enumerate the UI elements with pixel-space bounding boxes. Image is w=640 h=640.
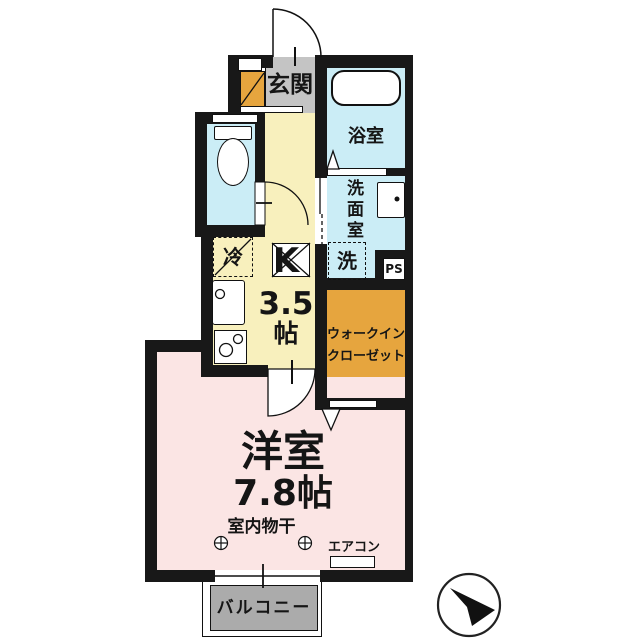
stove (214, 330, 247, 364)
washer-label: 洗 (337, 251, 357, 271)
entrance-step (240, 106, 303, 113)
washroom-label: 洗面室 (344, 179, 361, 242)
washbasin (377, 182, 405, 218)
fridge-box: 冷 (213, 237, 253, 277)
entrance-label: 玄関 (265, 74, 315, 97)
room-fill-left (157, 352, 201, 377)
indoor-drying-label: 室内物干 (194, 519, 329, 536)
floorplan-canvas: PS 洗 冷 バルコニー 玄関 浴室 洗面室 K 3.5 帖 ウォークイン クロ… (0, 0, 640, 640)
right-wall (405, 55, 413, 582)
bath-label: 浴室 (327, 128, 405, 146)
aircon-label: エアコン (328, 541, 378, 554)
bath-left-wall (315, 68, 327, 178)
room-left-wall (145, 340, 157, 582)
entrance-window (238, 58, 262, 71)
fridge-label: 冷 (223, 247, 243, 267)
kitchen-sink (212, 280, 245, 325)
shoe-cabinet (240, 71, 265, 107)
wic-threshold (329, 400, 377, 408)
wic-label-line1: ウォークイン (327, 328, 405, 341)
top-wall-right (315, 55, 413, 68)
entrance-doorway-fill (273, 57, 315, 68)
ps-box: PS (383, 258, 405, 280)
balcony-label: バルコニー (217, 600, 312, 617)
kitchen-unit-label: 帖 (258, 321, 314, 346)
kitchen-k-label: K (266, 244, 306, 278)
north-arrow-icon (438, 574, 500, 636)
toilet-window (212, 114, 258, 123)
toilet-right-wall-low (255, 220, 265, 237)
kitchen-size-label: 3.5 (258, 289, 314, 320)
aircon-box (330, 556, 375, 568)
room-bottom-wall (145, 570, 413, 582)
washroom-left-wall (315, 244, 327, 410)
kitchen-bottom-wall (201, 365, 268, 377)
washer-box: 洗 (328, 242, 366, 280)
room-label: 洋室 (183, 431, 383, 473)
washroom-door-icon (315, 178, 327, 244)
bathtub (331, 70, 401, 106)
wic-label-line2: クローゼット (327, 350, 405, 363)
bath-threshold (327, 168, 387, 176)
ps-label: PS (385, 263, 402, 275)
room-size-label: 7.8帖 (183, 476, 383, 512)
balcony-inner: バルコニー (210, 585, 318, 631)
toilet-bowl (217, 138, 249, 186)
hall-fill (265, 113, 315, 237)
toilet-left-wall (195, 112, 207, 237)
